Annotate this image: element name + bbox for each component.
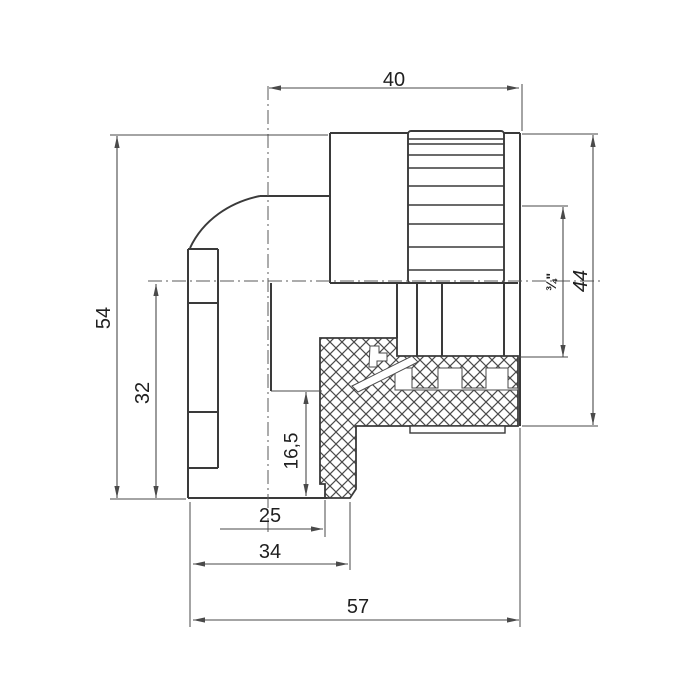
dim-25-label: 25 [259,505,281,527]
dim-34-label: 34 [259,541,281,563]
dim-25-arrow [311,526,323,531]
dim-44-label: 44 [570,270,592,292]
elbow-outer-curve [190,196,260,248]
dim-40-label: 40 [383,69,405,91]
dim-3-4-arrow [560,345,565,357]
dim-3-4-arrow [560,207,565,219]
dim-57-label: 57 [347,596,369,618]
dim-54-arrow [114,486,119,498]
dim-32-arrow [153,284,158,296]
dim-3-4-label: ¾" [543,273,559,291]
knurl-body [408,131,504,283]
dim-54-label: 54 [93,307,115,329]
dim-16-5-arrow [303,392,308,404]
insert-collar-foot [410,426,505,433]
section-hatch [320,338,518,498]
technical-drawing-svg: 40543216,5253457¾"44 [0,0,700,700]
dim-44-arrow [590,413,595,425]
dim-40-arrow [269,85,281,90]
dim-44-arrow [590,135,595,147]
dim-32-label: 32 [132,382,154,404]
dim-34-arrow [336,561,348,566]
drawing-canvas: 40543216,5253457¾"44 [0,0,700,700]
dim-32-arrow [153,486,158,498]
dim-57-arrow [193,617,205,622]
dim-40-arrow [507,85,519,90]
dim-34-arrow [193,561,205,566]
dim-57-arrow [507,617,519,622]
dim-16-5-arrow [303,484,308,496]
dim-54-arrow [114,136,119,148]
dim-16-5-label: 16,5 [282,433,303,470]
